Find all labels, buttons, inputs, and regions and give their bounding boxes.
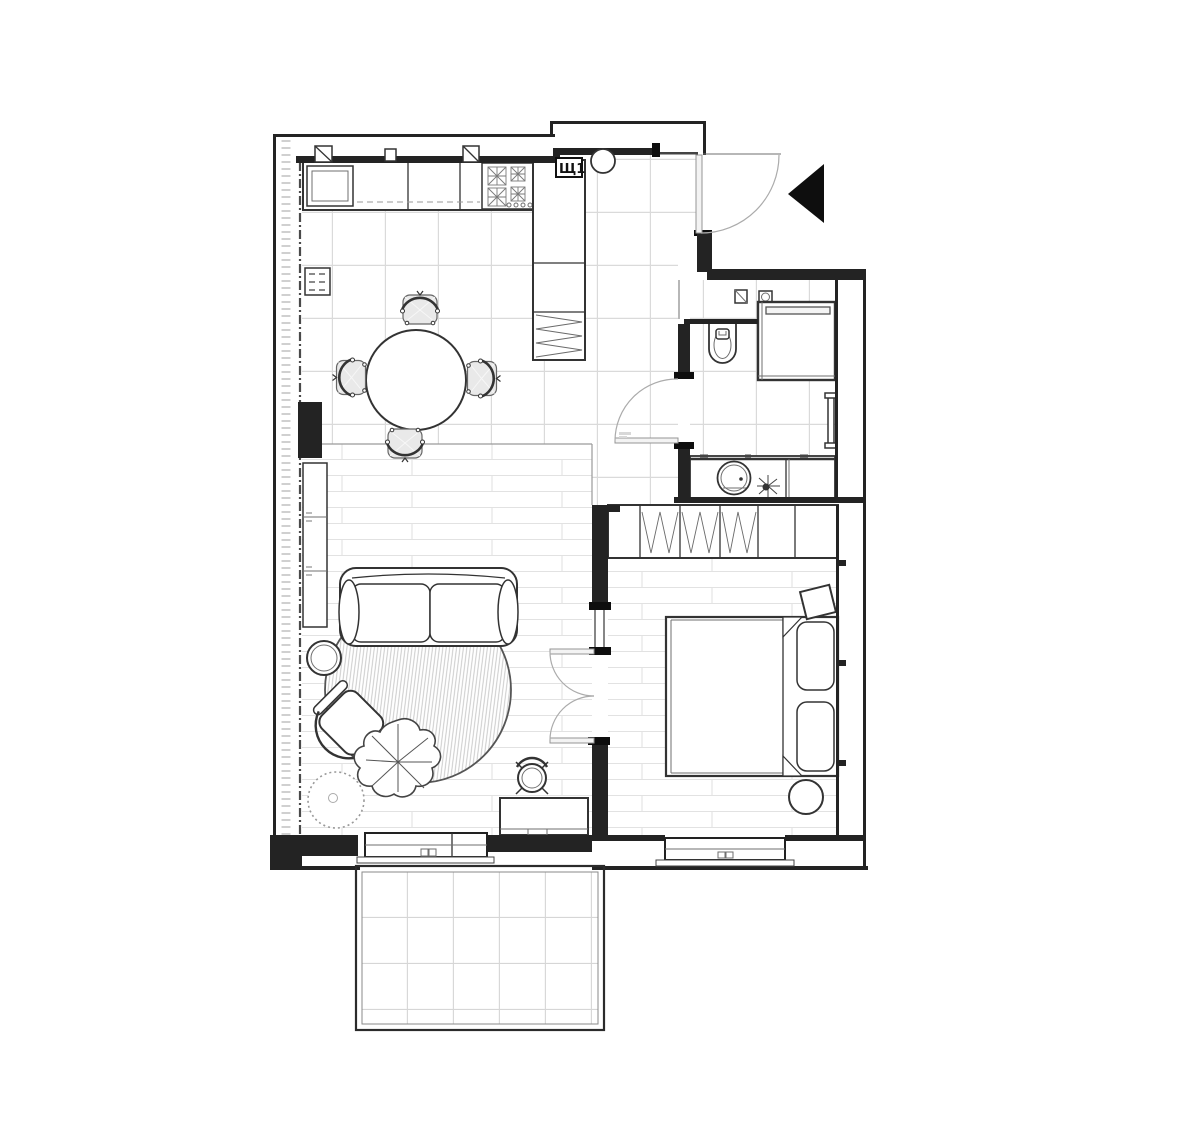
inner-wall-top	[296, 156, 558, 163]
entry-right-wall	[697, 233, 712, 272]
electrical-panel-label: Щ1	[559, 162, 585, 177]
double-door-leaf-top	[550, 649, 594, 654]
kitchen-sink	[307, 166, 353, 206]
partition-cap-1	[589, 602, 611, 610]
bathroom-bottom-wall	[674, 497, 866, 503]
tall-cabinet-column	[533, 160, 585, 360]
wall-radiator	[305, 268, 330, 295]
cooktop-4-burner	[482, 163, 533, 209]
stool	[516, 758, 548, 794]
window-sill	[357, 857, 494, 863]
outer-wall-top-step	[550, 121, 706, 124]
hall-floor	[592, 235, 678, 505]
vent-duct	[735, 290, 747, 303]
dining-table-round	[366, 330, 466, 430]
floor-plan-svg: Щ1	[0, 0, 1200, 1129]
round-basin	[718, 462, 751, 495]
bathroom-left-wall-lower	[678, 448, 690, 497]
bathroom-top-wall	[707, 269, 866, 280]
dining-chair-left	[333, 358, 367, 397]
pillow-1	[797, 622, 834, 690]
pouf-round	[789, 780, 823, 814]
entry-door	[696, 155, 824, 233]
dimension-mark-2	[619, 436, 627, 438]
entry-direction-arrow	[788, 164, 824, 223]
outer-wall-left	[273, 134, 276, 868]
outer-wall-top	[273, 134, 555, 137]
dining-chair-right	[467, 359, 501, 398]
entry-niche-line	[658, 152, 698, 155]
bathroom-left-wall-upper	[678, 324, 690, 378]
wardrobe-hanging	[608, 505, 838, 558]
dining-chair-top	[401, 291, 440, 325]
balcony	[356, 866, 604, 1030]
side-table	[307, 641, 341, 675]
double-door-leaf-bottom	[550, 738, 594, 743]
inner-wall-right-bedroom	[836, 505, 839, 835]
entry-door-leaf	[696, 155, 702, 233]
bathroom-door-leaf	[615, 438, 678, 443]
bottom-wall-bedroom-right	[785, 835, 866, 841]
potted-plant	[308, 772, 364, 828]
entry-jamb-left	[652, 143, 660, 157]
wall-vent-2	[385, 149, 396, 161]
balcony-window	[357, 833, 494, 863]
partition-upper	[592, 505, 608, 602]
electrical-panel-box: Щ1	[556, 158, 585, 177]
sideboard	[303, 463, 327, 627]
ceiling-light	[591, 149, 615, 173]
vanity-counter	[690, 456, 835, 500]
bottom-wall-left	[270, 835, 358, 856]
nightstand-tilted	[800, 585, 836, 619]
entry-door-swing	[701, 155, 779, 233]
pillow-2	[797, 702, 834, 771]
outer-wall-right	[863, 269, 866, 870]
desk	[500, 798, 588, 835]
floor-plan-page: Щ1	[0, 0, 1200, 1129]
bottom-wall-mid	[487, 835, 592, 852]
dining-chair-bottom	[386, 428, 425, 462]
toilet-niche-wall	[684, 319, 758, 324]
sofa-two-seat	[339, 568, 518, 646]
inner-wall-right-bath	[835, 280, 838, 497]
balcony-floor	[362, 872, 598, 1024]
bathroom-door-jamb-top	[674, 372, 694, 379]
double-bed	[666, 617, 838, 776]
shower-bar	[766, 307, 830, 314]
bottom-wall-bedroom-left	[592, 835, 665, 841]
outer-wall-bottom	[592, 866, 868, 870]
shower-enclosure	[758, 302, 835, 380]
window-sill	[656, 860, 794, 866]
partition-lower	[592, 745, 608, 835]
bedroom-window	[656, 838, 794, 866]
toilet	[709, 323, 736, 363]
dimension-mark	[619, 432, 631, 435]
wall-pier	[298, 402, 322, 458]
